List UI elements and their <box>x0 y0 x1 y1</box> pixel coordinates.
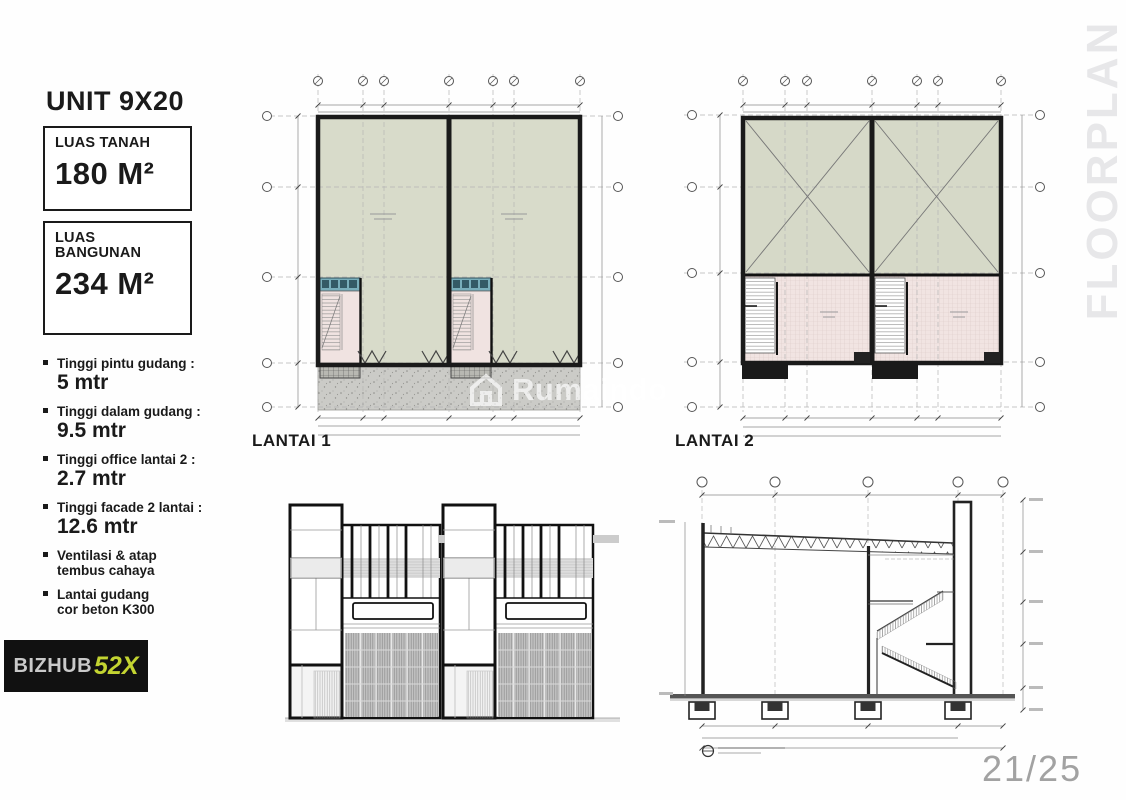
spec-title-line2: cor beton K300 <box>57 602 243 617</box>
spec-title: Lantai gudang <box>57 587 243 602</box>
luas-bangunan-label-line1: LUAS <box>55 231 180 246</box>
front-elevation-drawing <box>280 485 625 740</box>
spec-item-dalam: Tinggi dalam gudang : 9.5 mtr <box>43 404 243 443</box>
luas-bangunan-value: 234 M² <box>55 266 180 302</box>
section-ground <box>670 694 1015 700</box>
l2-unit2-stair <box>875 278 907 355</box>
section-roof-truss <box>704 525 953 554</box>
lantai2-plan-svg: LANTAI 2 <box>660 60 1060 455</box>
bizhub-logo: BIZHUB 52X <box>4 640 148 692</box>
spec-title: Tinggi facade 2 lantai : <box>57 500 243 515</box>
section-dim-top <box>700 493 1006 498</box>
spec-value: 9.5 mtr <box>57 419 243 443</box>
spec-value: 12.6 mtr <box>57 515 243 539</box>
l1-grid-bubbles-top <box>314 77 585 86</box>
lantai1-label: LANTAI 1 <box>252 431 331 450</box>
section-dim-bottom <box>700 724 1006 751</box>
section-drawing <box>655 470 1080 775</box>
floorplan-slide: UNIT 9X20 LUAS TANAH 180 M² LUAS BANGUNA… <box>0 0 1126 800</box>
bullet-icon <box>43 408 48 413</box>
section-grid-bubbles <box>697 477 1008 487</box>
section-dim-right <box>1021 498 1044 713</box>
elevation-unit-2 <box>443 505 593 718</box>
elevation-unit-1 <box>290 505 440 718</box>
spec-item-pintu: Tinggi pintu gudang : 5 mtr <box>43 356 243 395</box>
floorplan-side-label: FLOORPLAN <box>1078 15 1126 325</box>
bullet-icon <box>43 552 48 557</box>
logo-brand-text: BIZHUB <box>13 655 92 678</box>
luas-bangunan-label-line2: BANGUNAN <box>55 246 180 261</box>
bullet-icon <box>43 591 48 596</box>
bullet-icon <box>43 360 48 365</box>
spec-list: Tinggi pintu gudang : 5 mtr Tinggi dalam… <box>43 356 243 626</box>
spec-item-office: Tinggi office lantai 2 : 2.7 mtr <box>43 452 243 491</box>
luas-tanah-card: LUAS TANAH 180 M² <box>43 126 192 211</box>
spec-title-line2: tembus cahaya <box>57 563 243 578</box>
section-dim-left <box>659 520 685 696</box>
spec-item-facade: Tinggi facade 2 lantai : 12.6 mtr <box>43 500 243 539</box>
spec-title: Tinggi office lantai 2 : <box>57 452 243 467</box>
lantai1-plan-drawing: LANTAI 1 <box>240 60 640 460</box>
luas-tanah-value: 180 M² <box>55 156 180 192</box>
spec-item-lantai-gudang: Lantai gudang cor beton K300 <box>43 587 243 617</box>
page-number: 21/25 <box>982 748 1082 790</box>
spec-value: 5 mtr <box>57 371 243 395</box>
bullet-icon <box>43 456 48 461</box>
l2-unit1-stair <box>745 278 777 355</box>
section-title-mark <box>702 746 785 757</box>
l2-grid-bubbles-top <box>739 77 1006 86</box>
spec-title: Ventilasi & atap <box>57 548 243 563</box>
spec-title: Tinggi dalam gudang : <box>57 404 243 419</box>
spec-value: 2.7 mtr <box>57 467 243 491</box>
section-svg <box>655 470 1080 770</box>
spec-title: Tinggi pintu gudang : <box>57 356 243 371</box>
luas-tanah-label: LUAS TANAH <box>55 136 180 151</box>
spec-item-ventilasi: Ventilasi & atap tembus cahaya <box>43 548 243 578</box>
unit-title: UNIT 9X20 <box>46 86 184 117</box>
l2-dim-lines-bottom <box>741 416 1004 437</box>
bullet-icon <box>43 504 48 509</box>
lantai2-label: LANTAI 2 <box>675 431 754 450</box>
lantai1-plan-svg: LANTAI 1 <box>240 60 640 455</box>
logo-suffix-text: 52X <box>94 652 138 681</box>
l1-dim-lines-bottom <box>316 416 583 436</box>
section-footings <box>689 702 971 719</box>
front-elevation-svg <box>280 485 625 735</box>
luas-bangunan-card: LUAS BANGUNAN 234 M² <box>43 221 192 335</box>
lantai2-plan-drawing: LANTAI 2 <box>660 60 1060 460</box>
